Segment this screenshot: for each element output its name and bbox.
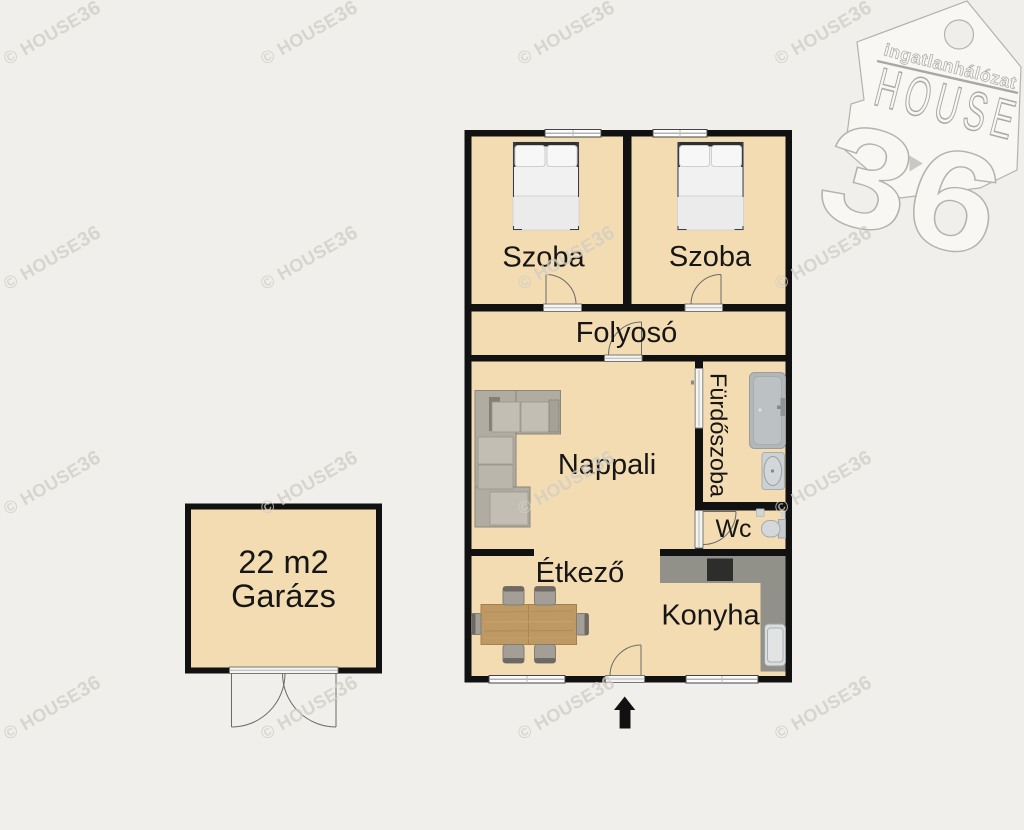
svg-text:Garázs: Garázs	[231, 578, 336, 614]
svg-text:Fürdőszoba: Fürdőszoba	[706, 373, 732, 498]
svg-text:22 m2: 22 m2	[238, 544, 328, 580]
svg-text:Szoba: Szoba	[669, 241, 752, 273]
svg-text:Étkező: Étkező	[536, 556, 625, 589]
svg-text:Konyha: Konyha	[661, 600, 760, 632]
svg-text:Folyosó: Folyosó	[576, 317, 678, 349]
svg-text:Wc: Wc	[715, 515, 751, 543]
